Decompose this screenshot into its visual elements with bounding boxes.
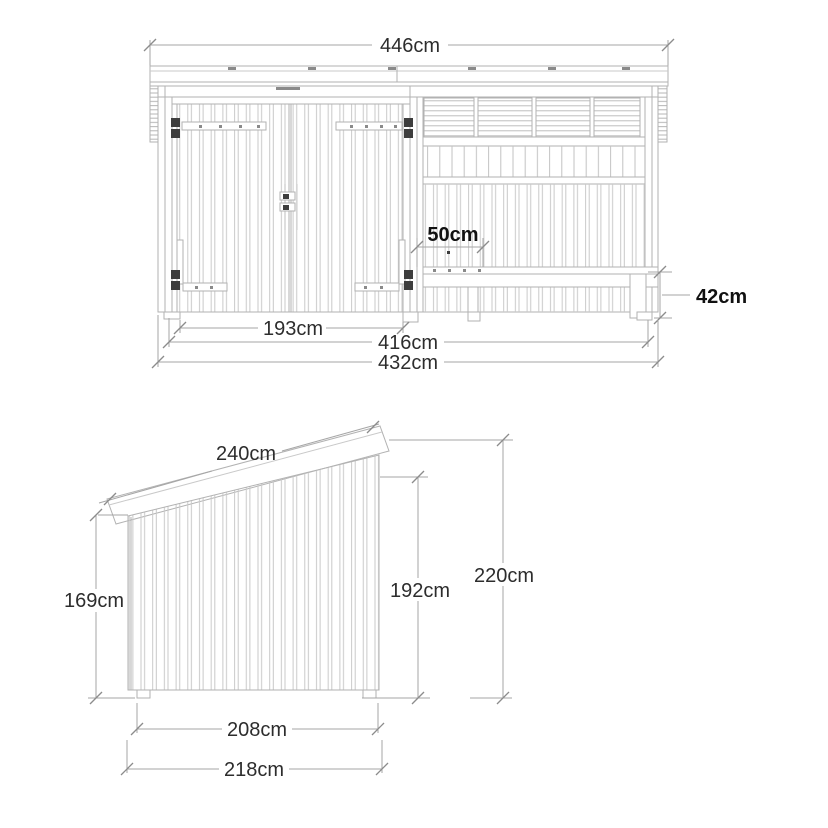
foundation-feet-front xyxy=(164,312,652,322)
dim-rear-height: 169cm xyxy=(64,509,135,704)
door-top-latch xyxy=(276,87,300,90)
dim-overall-width-label: 432cm xyxy=(378,352,438,374)
roof-fascia xyxy=(150,66,668,86)
dim-front-height-label: 192cm xyxy=(390,580,450,602)
dim-total-width-label: 446cm xyxy=(380,35,440,57)
side-elevation-view: 240cm 169cm xyxy=(64,421,534,781)
back-wall-planks xyxy=(423,184,645,312)
bench-leg-right xyxy=(630,274,646,318)
shed-technical-drawing: 446cm xyxy=(0,0,828,828)
dim-door-opening-width: 193cm xyxy=(174,318,409,340)
dim-overall-depth-label: 218cm xyxy=(224,759,284,781)
dim-bench-height-label: 42cm xyxy=(696,286,747,308)
louver-vents xyxy=(424,98,640,137)
dim-door-opening-width-label: 193cm xyxy=(263,318,323,340)
baluster-band xyxy=(423,146,645,177)
dim-overall-depth: 218cm xyxy=(121,740,388,781)
dim-inner-depth: 208cm xyxy=(131,703,384,741)
dim-roof-length-label: 240cm xyxy=(216,443,276,465)
dim-inner-width-label: 416cm xyxy=(378,332,438,354)
bench-leg-left xyxy=(468,287,478,312)
left-door xyxy=(177,104,289,312)
dim-total-height-label: 220cm xyxy=(474,565,534,587)
bench-seat xyxy=(423,267,658,274)
dim-bench-height: 42cm xyxy=(648,266,747,324)
dim-total-width: 446cm xyxy=(144,35,674,66)
drawing-canvas: 446cm xyxy=(0,0,828,828)
right-door xyxy=(291,104,403,312)
front-elevation-view: 446cm xyxy=(144,35,747,374)
bench-apron xyxy=(423,274,658,287)
dim-inner-depth-label: 208cm xyxy=(227,719,287,741)
dim-bench-depth-label: 50cm xyxy=(427,224,478,246)
dim-rear-height-label: 169cm xyxy=(64,590,124,612)
foundation-feet-side xyxy=(137,690,376,698)
dim-total-height: 220cm xyxy=(389,434,534,704)
